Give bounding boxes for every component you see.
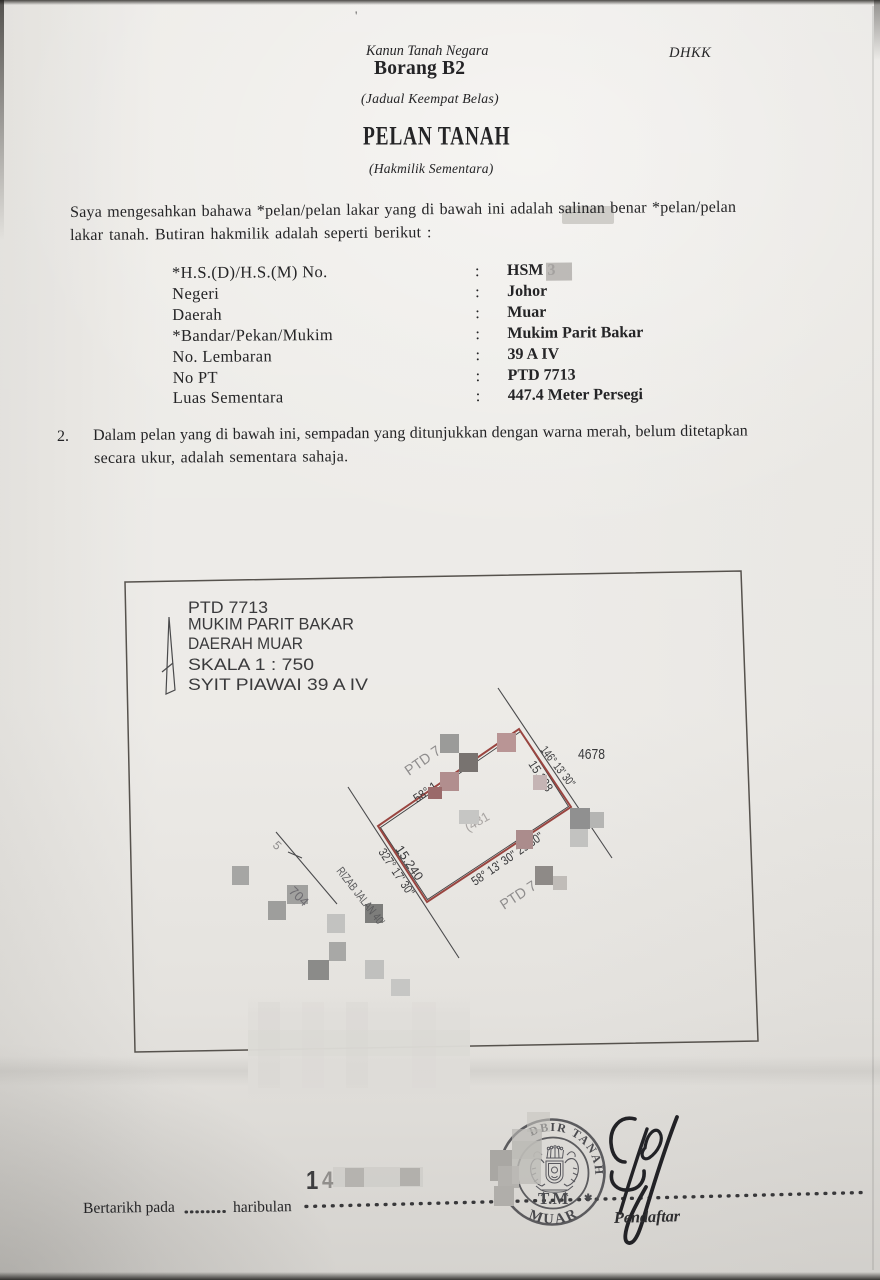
svg-text:4: 4 — [322, 1166, 334, 1193]
svg-text:Pendaftar: Pendaftar — [613, 1206, 681, 1227]
svg-text:✱: ✱ — [584, 1193, 593, 1204]
svg-text:1: 1 — [306, 1166, 318, 1195]
